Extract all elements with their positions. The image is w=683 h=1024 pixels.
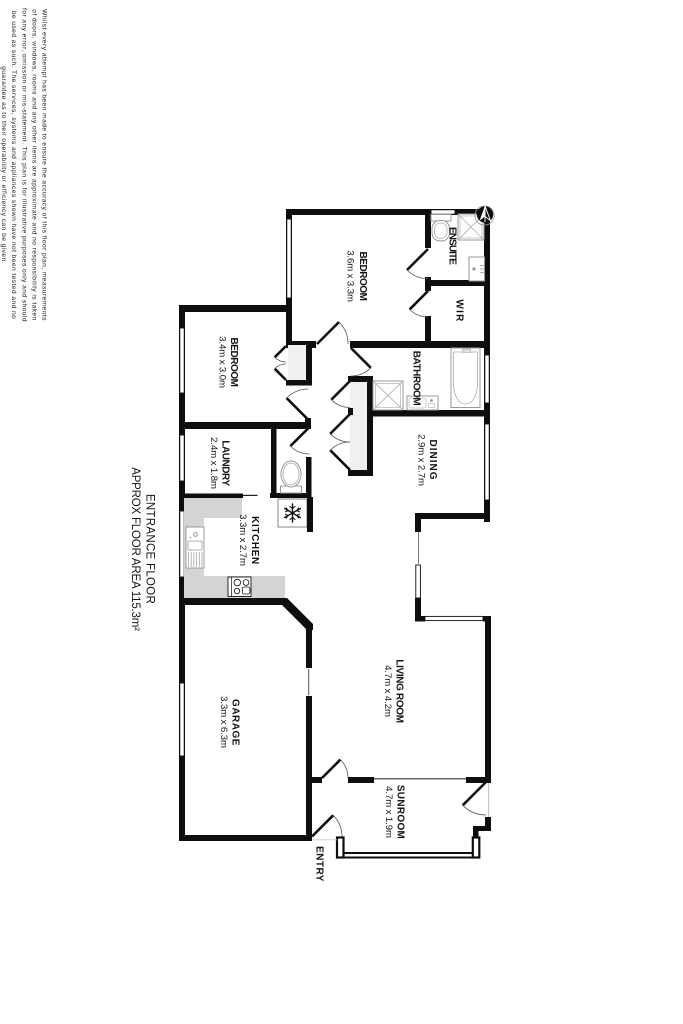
svg-text:BATHROOM: BATHROOM (411, 351, 422, 406)
svg-text:guarantee as to their operabil: guarantee as to their operability or eff… (0, 66, 7, 264)
svg-text:for any error, omission or mis: for any error, omission or mis-statement… (20, 8, 27, 322)
svg-text:2.4m x 1.8m: 2.4m x 1.8m (208, 437, 219, 489)
svg-text:ENTRANCE FLOOR: ENTRANCE FLOOR (144, 494, 156, 604)
svg-text:LIVING ROOM: LIVING ROOM (394, 659, 405, 722)
svg-text:DINING: DINING (427, 440, 438, 481)
svg-text:2.9m x 2.7m: 2.9m x 2.7m (416, 434, 427, 486)
svg-text:be used as such. The services,: be used as such. The services, systems a… (10, 11, 17, 319)
svg-text:3.3m x 2.7m: 3.3m x 2.7m (237, 514, 248, 566)
svg-text:ENSUITE: ENSUITE (447, 227, 458, 265)
svg-text:SUNROOM: SUNROOM (395, 785, 406, 839)
svg-text:KITCHEN: KITCHEN (249, 516, 260, 565)
svg-text:4.7m x 4.2m: 4.7m x 4.2m (382, 665, 393, 717)
svg-text:BEDROOM: BEDROOM (357, 251, 368, 300)
svg-text:BEDROOM: BEDROOM (228, 337, 239, 386)
svg-text:ENTRY: ENTRY (314, 846, 325, 882)
svg-text:LAUNDRY: LAUNDRY (220, 440, 231, 486)
svg-text:Whilst every attempt has been: Whilst every attempt has been made to en… (41, 9, 48, 321)
svg-text:3.6m x 3.3m: 3.6m x 3.3m (345, 250, 356, 302)
svg-text:GARAGE: GARAGE (230, 699, 241, 746)
svg-text:3.4m x 3.0m: 3.4m x 3.0m (217, 336, 228, 388)
svg-text:3.3m x 6.3m: 3.3m x 6.3m (218, 696, 229, 748)
svg-text:WIR: WIR (454, 299, 465, 322)
svg-text:APPROX FLOOR AREA 115.3m²: APPROX FLOOR AREA 115.3m² (129, 467, 141, 631)
svg-text:4.7m x 1.9m: 4.7m x 1.9m (383, 786, 394, 838)
svg-text:of doors, windows, rooms and a: of doors, windows, rooms and any other i… (30, 9, 37, 320)
